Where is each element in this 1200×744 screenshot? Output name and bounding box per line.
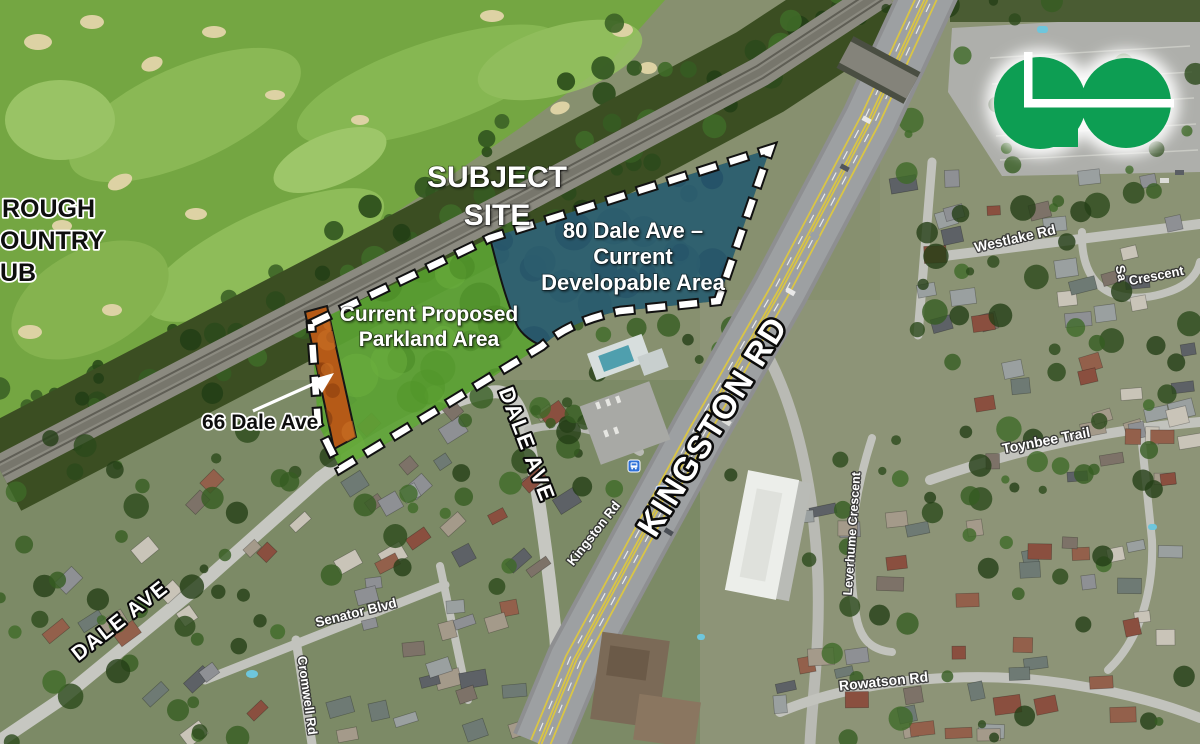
bus-stop-icon: [628, 460, 640, 472]
svg-text:80 Dale Ave –: 80 Dale Ave –: [563, 218, 703, 243]
svg-text:UB: UB: [0, 259, 36, 287]
address-66-label: 66 Dale Ave: [202, 411, 318, 434]
svg-text:Current: Current: [593, 244, 673, 269]
svg-text:ROUGH: ROUGH: [2, 195, 95, 223]
svg-text:OUNTRY: OUNTRY: [0, 227, 105, 255]
svg-text:SITE: SITE: [464, 199, 531, 232]
svg-text:Parkland Area: Parkland Area: [359, 328, 500, 351]
svg-text:Developable Area: Developable Area: [541, 270, 726, 295]
svg-text:Current Proposed: Current Proposed: [340, 303, 519, 326]
svg-text:SUBJECT: SUBJECT: [427, 161, 567, 194]
site-context-aerial-map: ROUGH OUNTRY UB SUBJECT SITE 80 Dale Ave…: [0, 0, 1200, 744]
